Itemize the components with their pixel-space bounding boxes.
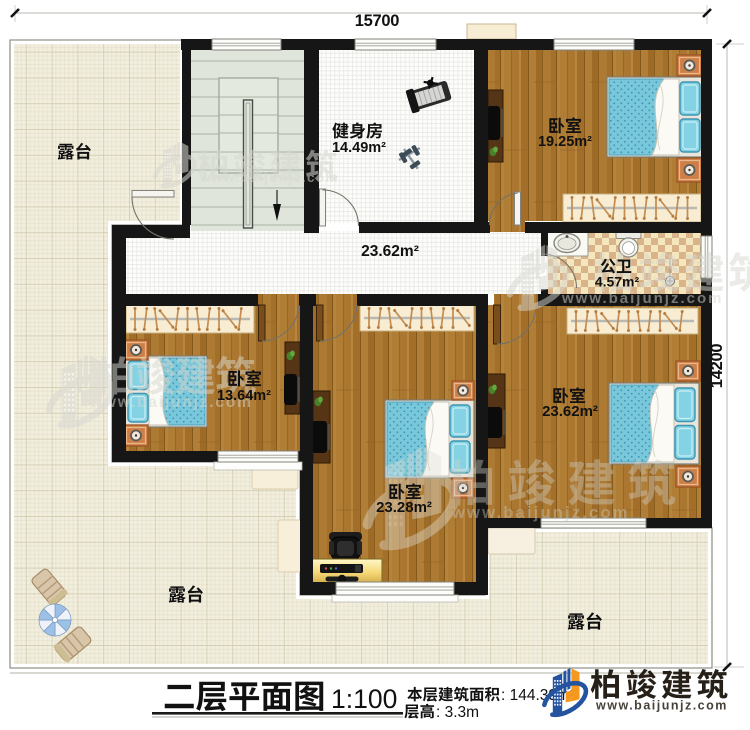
svg-text:23.62m²: 23.62m² [361, 243, 419, 260]
svg-text:13.64m²: 13.64m² [217, 388, 271, 404]
svg-text:www.baijunjz.com: www.baijunjz.com [595, 699, 728, 713]
svg-text:23.28m²: 23.28m² [376, 499, 432, 516]
svg-text:23.62m²: 23.62m² [542, 403, 598, 420]
svg-text:www.baijunjz.com: www.baijunjz.com [199, 170, 339, 185]
svg-text:15700: 15700 [355, 12, 400, 30]
svg-text:4.57m²: 4.57m² [595, 274, 640, 290]
svg-text:14.49m²: 14.49m² [332, 140, 386, 156]
svg-text:www.baijunjz.com: www.baijunjz.com [561, 290, 723, 307]
svg-text:1:100: 1:100 [331, 684, 397, 714]
svg-text:: 3.3m: : 3.3m [436, 704, 479, 721]
svg-text:14200: 14200 [708, 344, 726, 389]
svg-text:19.25m²: 19.25m² [538, 134, 592, 150]
svg-text:www.baijunjz.com: www.baijunjz.com [451, 504, 630, 522]
